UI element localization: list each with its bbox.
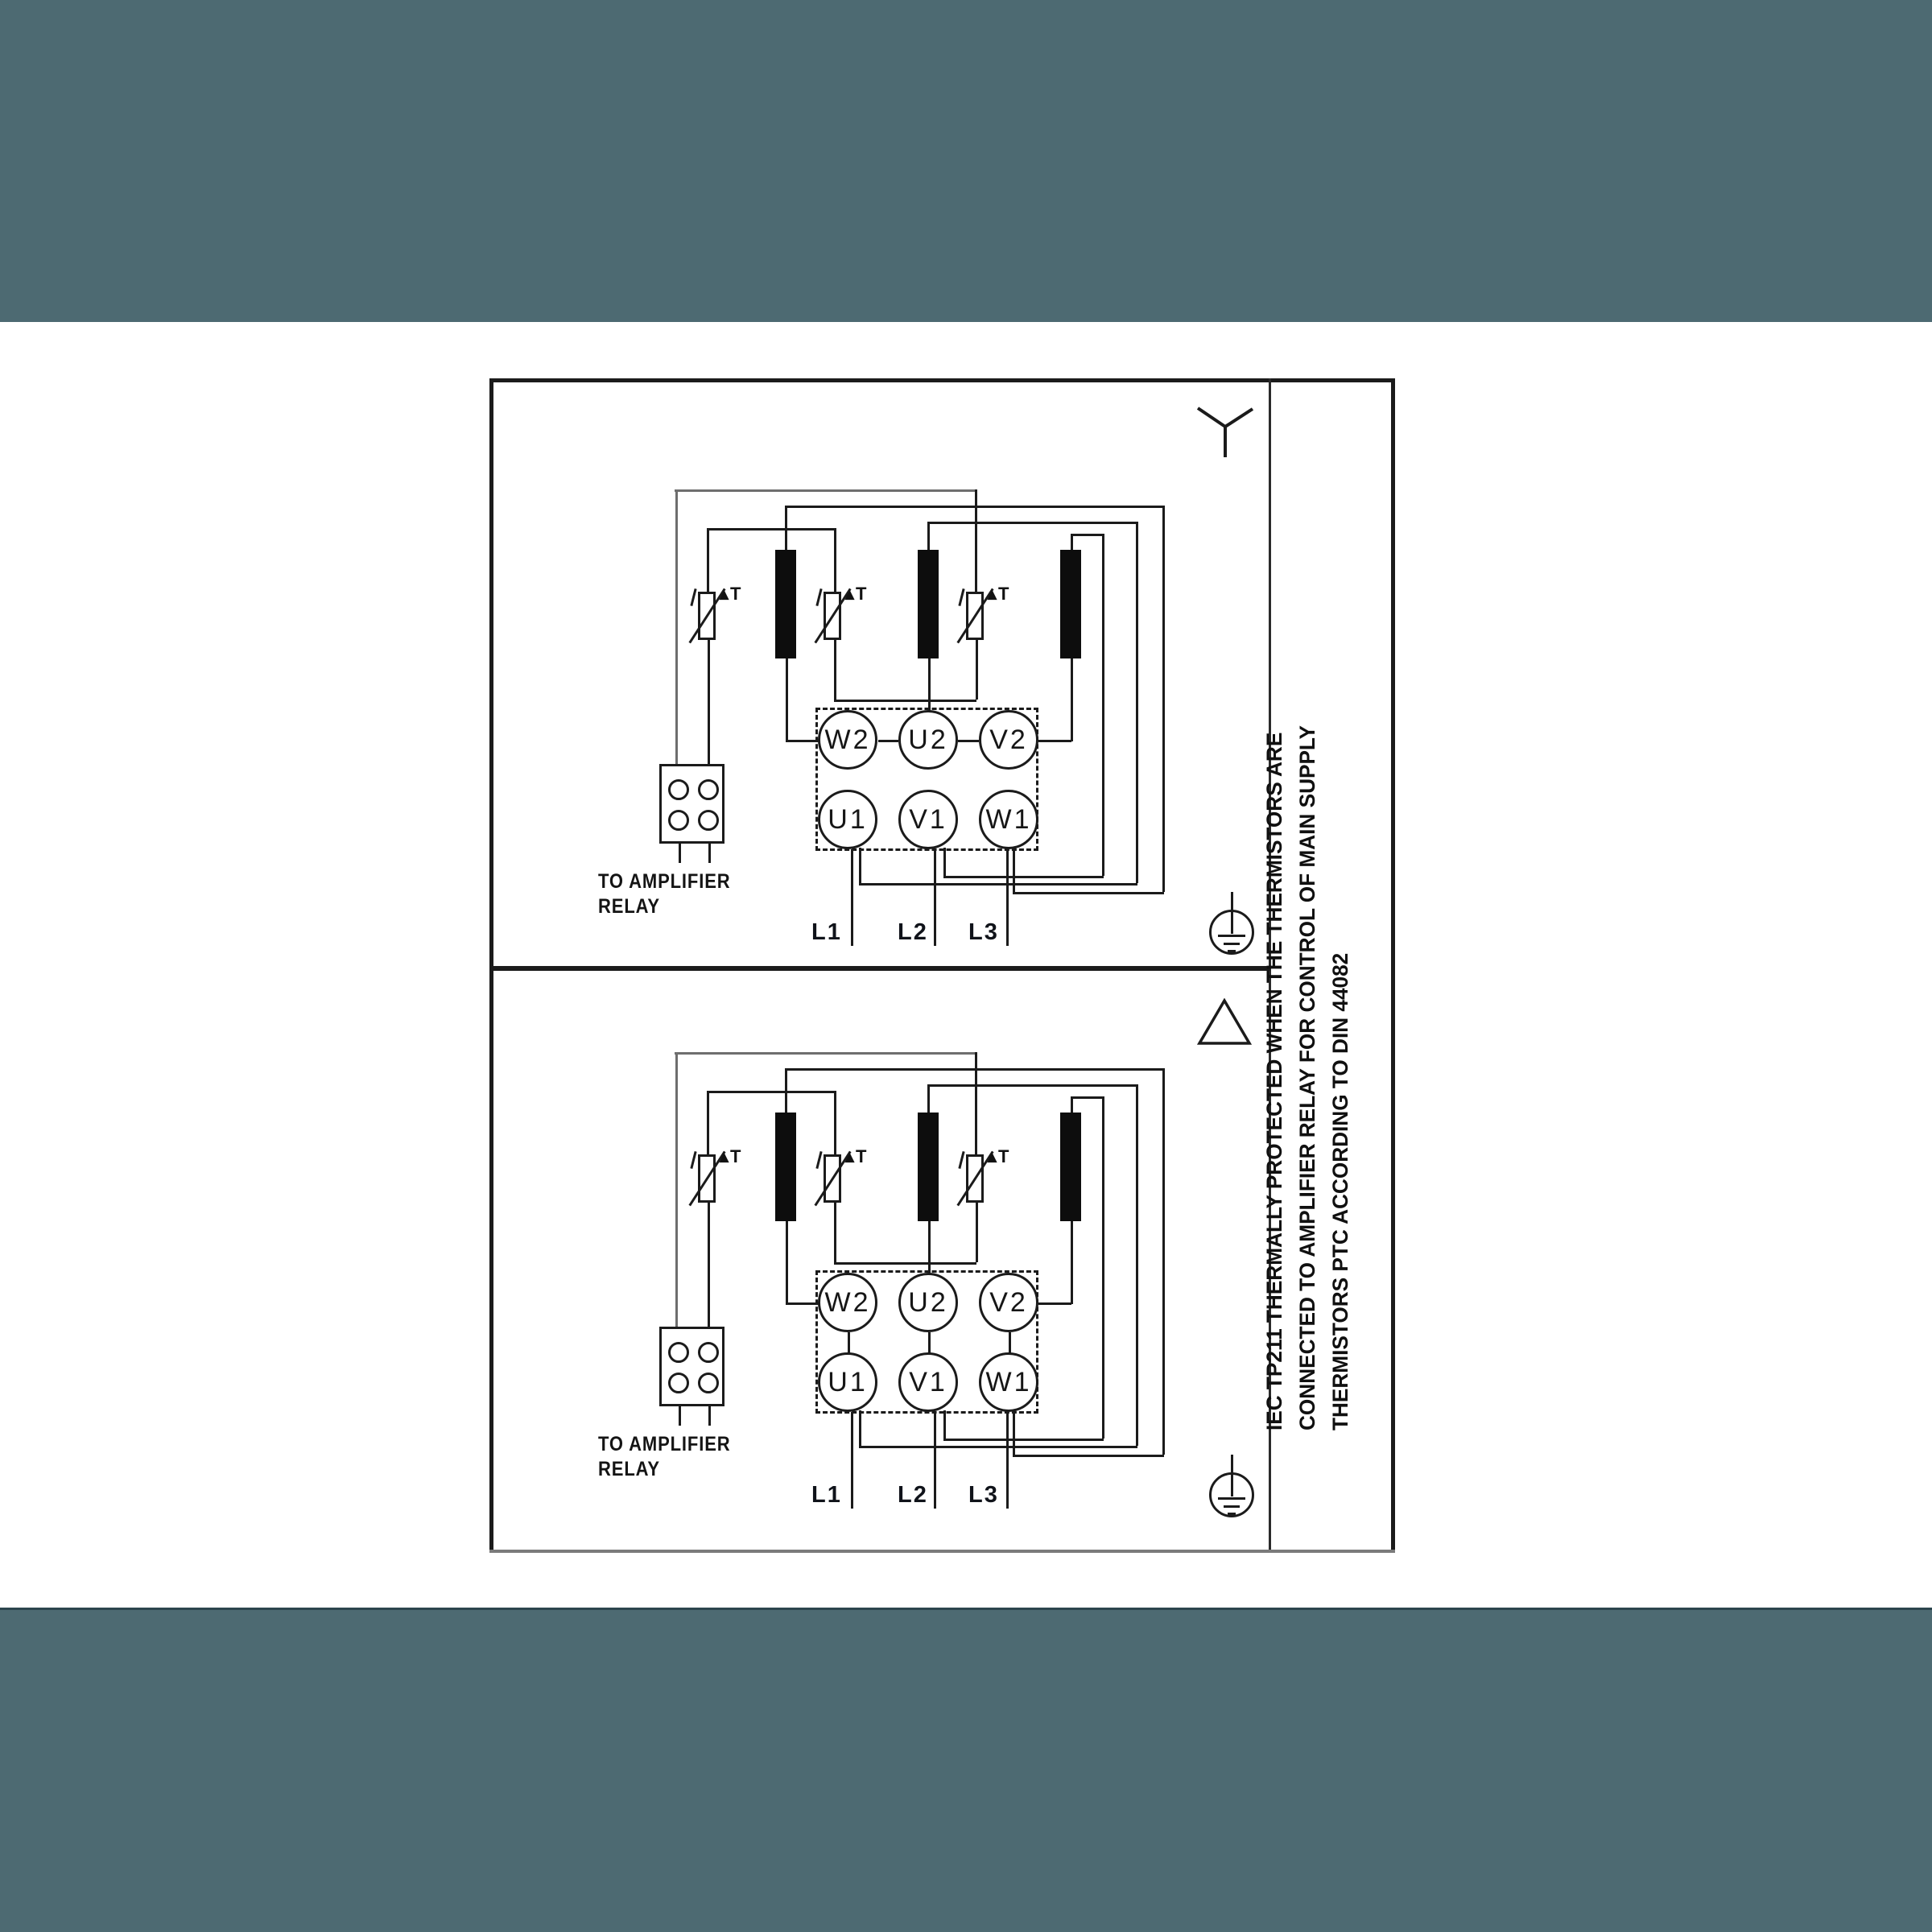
terminal-v1: V1	[898, 790, 958, 849]
thermistor-temp-label: ▴T	[988, 1146, 1010, 1167]
wire-segment	[928, 658, 931, 711]
thermistor-temp-label: ▴T	[720, 1146, 742, 1167]
delta-connection-icon	[1197, 998, 1252, 1051]
bottom-band	[0, 1610, 1932, 1932]
wire-segment	[679, 844, 681, 863]
wire-segment	[1038, 1302, 1071, 1305]
wire-segment	[675, 1052, 678, 1327]
motor-winding-bar-1	[775, 1113, 796, 1221]
wire-segment	[928, 1221, 931, 1274]
wire-segment	[786, 740, 819, 742]
relay-connector-block	[659, 1327, 724, 1406]
wire-segment	[927, 522, 930, 551]
terminal-u2: U2	[898, 710, 958, 770]
wire-segment	[707, 1091, 709, 1156]
wire-segment	[707, 528, 836, 530]
thermistor-temp-label: ▴T	[988, 584, 1010, 605]
terminal-u1: U1	[818, 790, 877, 849]
terminal-u1: U1	[818, 1352, 877, 1412]
wire-segment	[785, 1068, 787, 1114]
diagram-border-right	[1391, 378, 1395, 1553]
relay-pin-hole	[698, 779, 719, 800]
terminal-label-v1: V1	[909, 804, 947, 836]
wire-segment	[834, 528, 836, 593]
wire-segment	[834, 1203, 836, 1262]
thermistor-flag	[690, 588, 696, 606]
wire-segment	[708, 1406, 711, 1426]
relay-note-line-2: RELAY	[598, 895, 660, 919]
wire-segment	[859, 1446, 1137, 1448]
wire-segment	[1162, 506, 1165, 892]
terminal-label-v1: V1	[909, 1367, 947, 1398]
wire-segment	[707, 528, 709, 593]
section-divider	[489, 966, 1270, 971]
relay-note-line-1: TO AMPLIFIER	[598, 870, 731, 894]
terminal-w1: W1	[979, 790, 1038, 849]
supply-label-l3: L3	[968, 919, 999, 946]
wire-segment	[943, 1410, 946, 1439]
wire-segment	[707, 1091, 836, 1093]
terminal-label-u1: U1	[828, 1367, 867, 1398]
earth-ground-icon	[1209, 1472, 1254, 1517]
relay-note-line-2: RELAY	[598, 1458, 660, 1481]
earth-ground-icon	[1209, 910, 1254, 955]
wire-segment	[1071, 658, 1073, 741]
wire-segment	[851, 849, 853, 946]
diagram-border-bottom	[489, 1550, 1395, 1553]
wire-segment	[859, 848, 861, 883]
side-note-line-2: CONNECTED TO AMPLIFIER RELAY FOR CONTROL…	[1295, 792, 1323, 1430]
relay-pin-hole	[668, 1373, 689, 1393]
thermistor-flag	[815, 588, 822, 606]
wire-segment	[859, 1410, 861, 1446]
wire-segment	[786, 658, 788, 741]
thermistor-flag	[958, 588, 964, 606]
wire-segment	[1006, 849, 1009, 946]
terminal-v1: V1	[898, 1352, 958, 1412]
relay-pin-hole	[698, 810, 719, 831]
wire-segment	[1013, 848, 1015, 892]
terminal-v2: V2	[979, 1273, 1038, 1332]
wire-segment	[1071, 1221, 1073, 1304]
relay-pin-hole	[668, 810, 689, 831]
thermistor-temp-label: ▴T	[720, 584, 742, 605]
wire-segment	[943, 1439, 1104, 1441]
relay-pin-hole	[698, 1342, 719, 1363]
wire-segment	[834, 1262, 976, 1265]
terminal-label-u2: U2	[908, 724, 947, 756]
terminal-label-w2: W2	[825, 1287, 871, 1319]
supply-label-l1: L1	[811, 919, 842, 946]
wire-segment	[675, 489, 976, 492]
wire-segment	[1013, 1455, 1164, 1457]
wire-segment	[975, 1052, 977, 1156]
wire-segment	[1071, 534, 1073, 551]
wire-segment	[834, 700, 976, 702]
thermistor-temp-label: ▴T	[845, 1146, 868, 1167]
wire-segment	[1136, 522, 1138, 883]
terminal-u2: U2	[898, 1273, 958, 1332]
star-connection-icon	[1191, 401, 1259, 464]
wire-segment	[1071, 1096, 1073, 1114]
wire-segment	[975, 489, 977, 593]
terminal-w1: W1	[979, 1352, 1038, 1412]
page-root: IEC TP211 THERMALLY PROTECTED WHEN THE T…	[0, 0, 1932, 1932]
wire-segment	[851, 1412, 853, 1509]
wire-segment	[834, 640, 836, 700]
terminal-label-w1: W1	[986, 1367, 1032, 1398]
wire-segment	[786, 1302, 819, 1305]
terminal-label-w1: W1	[986, 804, 1032, 836]
side-note-line-1: IEC TP211 THERMALLY PROTECTED WHEN THE T…	[1262, 798, 1290, 1430]
thermistor-flag	[815, 1151, 822, 1169]
wire-segment	[1136, 1084, 1138, 1446]
terminal-label-v2: V2	[989, 1287, 1028, 1319]
wire-segment	[834, 1091, 836, 1156]
diagram-border-top	[489, 378, 1395, 382]
thermistor-flag	[958, 1151, 964, 1169]
wire-segment	[976, 640, 978, 700]
motor-winding-bar-3	[1060, 550, 1081, 658]
wire-segment	[1013, 892, 1164, 894]
wire-segment	[1013, 1410, 1015, 1455]
wire-segment	[708, 640, 710, 764]
relay-pin-hole	[668, 1342, 689, 1363]
thermistor-flag	[690, 1151, 696, 1169]
wire-segment	[927, 522, 1137, 524]
thermistor-temp-label: ▴T	[845, 584, 868, 605]
wire-segment	[1071, 534, 1104, 536]
relay-connector-block	[659, 764, 724, 844]
wire-segment	[785, 506, 787, 551]
wire-segment	[786, 1221, 788, 1304]
terminal-v2: V2	[979, 710, 1038, 770]
supply-label-l2: L2	[898, 919, 928, 946]
wire-segment	[1162, 1068, 1165, 1455]
wire-segment	[1038, 740, 1071, 742]
wire-segment	[679, 1406, 681, 1426]
wire-segment	[1102, 534, 1104, 876]
terminal-label-v2: V2	[989, 724, 1028, 756]
motor-winding-bar-1	[775, 550, 796, 658]
supply-label-l1: L1	[811, 1482, 842, 1509]
motor-winding-bar-2	[918, 550, 939, 658]
relay-note-line-1: TO AMPLIFIER	[598, 1433, 731, 1456]
supply-label-l3: L3	[968, 1482, 999, 1509]
top-band	[0, 0, 1932, 322]
motor-winding-bar-2	[918, 1113, 939, 1221]
wire-segment	[934, 1412, 936, 1509]
terminal-label-u1: U1	[828, 804, 867, 836]
terminal-w2: W2	[818, 710, 877, 770]
wire-segment	[976, 1203, 978, 1262]
relay-pin-hole	[698, 1373, 719, 1393]
wire-segment	[1006, 1412, 1009, 1509]
wire-segment	[927, 1084, 930, 1114]
relay-pin-hole	[668, 779, 689, 800]
terminal-w2: W2	[818, 1273, 877, 1332]
wire-segment	[708, 844, 711, 863]
wire-segment	[1102, 1096, 1104, 1439]
wire-segment	[943, 848, 946, 876]
wire-segment	[1071, 1096, 1104, 1099]
wire-segment	[927, 1084, 1137, 1087]
terminal-label-u2: U2	[908, 1287, 947, 1319]
wire-segment	[859, 883, 1137, 885]
wire-segment	[675, 1052, 976, 1055]
side-note-line-3: THERMISTORS PTC ACCORDING TO DIN 44082	[1328, 981, 1356, 1430]
wire-segment	[708, 1203, 710, 1327]
wire-segment	[675, 489, 678, 764]
wire-segment	[934, 849, 936, 946]
supply-label-l2: L2	[898, 1482, 928, 1509]
motor-winding-bar-3	[1060, 1113, 1081, 1221]
terminal-label-w2: W2	[825, 724, 871, 756]
wire-segment	[943, 876, 1104, 878]
